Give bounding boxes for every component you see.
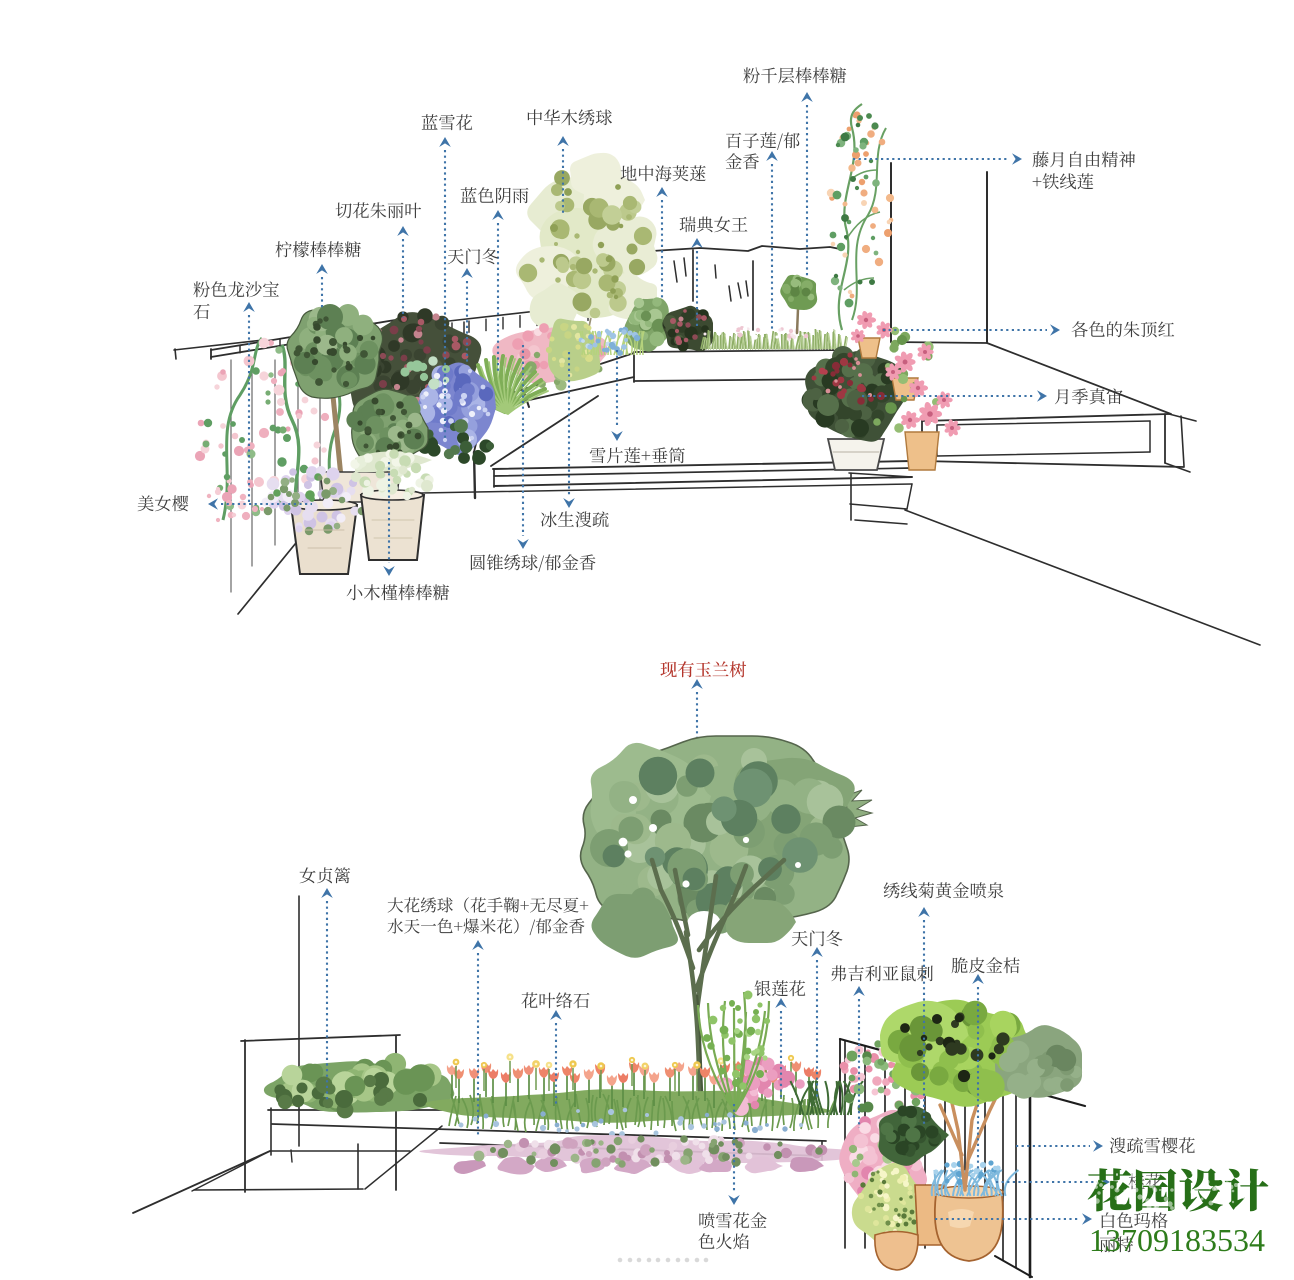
svg-text:13709183534: 13709183534 <box>1089 1222 1265 1258</box>
